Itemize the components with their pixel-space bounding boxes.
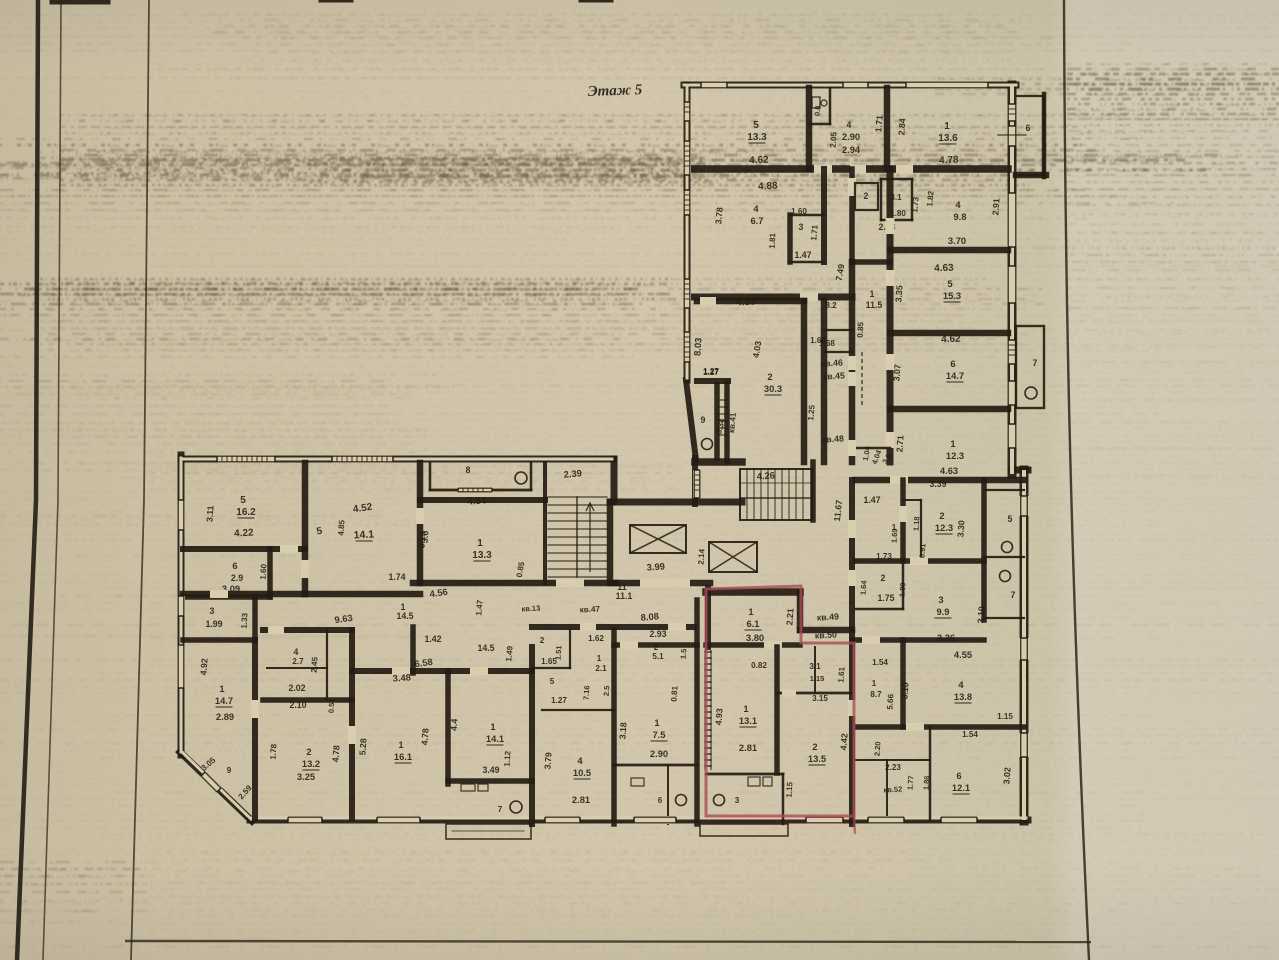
svg-text:3.49: 3.49 bbox=[482, 765, 499, 775]
svg-text:1.27: 1.27 bbox=[703, 368, 719, 377]
svg-text:7.5: 7.5 bbox=[652, 729, 665, 740]
svg-text:кв.49: кв.49 bbox=[817, 611, 840, 622]
svg-text:1.18: 1.18 bbox=[912, 516, 922, 531]
svg-text:1.27: 1.27 bbox=[551, 696, 567, 705]
svg-text:1.61: 1.61 bbox=[836, 666, 846, 683]
svg-text:5: 5 bbox=[550, 677, 555, 686]
svg-text:4: 4 bbox=[294, 647, 299, 657]
svg-text:1: 1 bbox=[870, 289, 875, 299]
svg-text:5: 5 bbox=[947, 278, 952, 289]
svg-text:3.02: 3.02 bbox=[1001, 767, 1012, 785]
svg-text:4.63: 4.63 bbox=[940, 465, 958, 476]
svg-text:1.47: 1.47 bbox=[474, 599, 484, 616]
svg-text:1: 1 bbox=[477, 538, 483, 549]
svg-text:0.8: 0.8 bbox=[813, 105, 823, 116]
svg-text:4.62: 4.62 bbox=[749, 155, 769, 167]
svg-text:1.54: 1.54 bbox=[872, 658, 888, 667]
svg-text:5: 5 bbox=[753, 120, 759, 131]
svg-text:2.45: 2.45 bbox=[309, 656, 319, 673]
svg-text:2.02: 2.02 bbox=[288, 683, 305, 693]
svg-text:2.91: 2.91 bbox=[990, 198, 1001, 216]
svg-text:12.1: 12.1 bbox=[952, 782, 970, 793]
svg-text:1: 1 bbox=[654, 717, 659, 728]
svg-text:2.05: 2.05 bbox=[829, 131, 839, 148]
svg-text:16.1: 16.1 bbox=[394, 751, 412, 762]
svg-text:6: 6 bbox=[232, 560, 237, 571]
svg-text:2: 2 bbox=[812, 741, 817, 752]
svg-text:2.93: 2.93 bbox=[649, 629, 666, 639]
svg-text:кв.41: кв.41 bbox=[727, 412, 738, 433]
svg-text:4.62: 4.62 bbox=[941, 334, 961, 346]
svg-text:1.51: 1.51 bbox=[554, 645, 564, 660]
svg-text:2.94: 2.94 bbox=[842, 144, 861, 155]
svg-text:4: 4 bbox=[958, 679, 964, 690]
svg-text:4.88: 4.88 bbox=[758, 180, 778, 192]
svg-text:4.55: 4.55 bbox=[954, 649, 972, 660]
svg-text:13.6: 13.6 bbox=[938, 133, 958, 144]
svg-text:2.84: 2.84 bbox=[896, 118, 907, 136]
svg-text:13.2: 13.2 bbox=[302, 758, 320, 769]
svg-text:1: 1 bbox=[748, 606, 753, 617]
svg-text:1.73: 1.73 bbox=[910, 196, 920, 213]
svg-text:3.99: 3.99 bbox=[646, 560, 665, 572]
svg-text:4.78: 4.78 bbox=[939, 154, 959, 166]
svg-text:13.1: 13.1 bbox=[739, 715, 757, 726]
svg-text:3.80: 3.80 bbox=[746, 632, 764, 643]
svg-text:0.81: 0.81 bbox=[669, 685, 679, 702]
svg-text:13.3: 13.3 bbox=[472, 550, 492, 561]
svg-text:1.60: 1.60 bbox=[258, 563, 268, 580]
svg-text:3: 3 bbox=[735, 796, 740, 805]
svg-text:3: 3 bbox=[210, 606, 215, 616]
svg-text:1.71: 1.71 bbox=[873, 115, 884, 133]
svg-text:1.86: 1.86 bbox=[922, 775, 932, 790]
svg-text:5.1: 5.1 bbox=[652, 652, 664, 661]
svg-text:1: 1 bbox=[398, 739, 403, 750]
svg-text:5: 5 bbox=[1008, 514, 1013, 524]
svg-text:5: 5 bbox=[240, 495, 246, 506]
svg-text:8.2: 8.2 bbox=[825, 301, 837, 310]
svg-text:1.25: 1.25 bbox=[806, 404, 816, 421]
svg-text:7.16: 7.16 bbox=[582, 685, 592, 700]
svg-text:3.11: 3.11 bbox=[204, 505, 215, 522]
svg-text:6: 6 bbox=[1026, 123, 1031, 133]
svg-text:0.51: 0.51 bbox=[327, 698, 337, 713]
svg-text:2: 2 bbox=[939, 510, 944, 521]
svg-text:2: 2 bbox=[767, 371, 772, 382]
svg-text:13.8: 13.8 bbox=[954, 691, 972, 702]
svg-text:1: 1 bbox=[944, 121, 950, 132]
svg-text:1.82: 1.82 bbox=[925, 190, 935, 207]
svg-text:3.18: 3.18 bbox=[617, 722, 628, 740]
svg-text:1.49: 1.49 bbox=[504, 645, 514, 662]
svg-text:Этаж 5: Этаж 5 bbox=[588, 82, 643, 100]
svg-text:6.7: 6.7 bbox=[750, 215, 763, 226]
svg-text:1.78: 1.78 bbox=[268, 743, 278, 760]
svg-text:3.10: 3.10 bbox=[899, 682, 910, 700]
svg-text:2.39: 2.39 bbox=[563, 467, 582, 480]
svg-text:16.2: 16.2 bbox=[236, 507, 256, 518]
svg-text:2: 2 bbox=[881, 573, 886, 583]
svg-text:4.92: 4.92 bbox=[198, 658, 209, 676]
svg-text:2.90: 2.90 bbox=[650, 748, 668, 759]
svg-text:3.15: 3.15 bbox=[812, 694, 828, 703]
svg-text:4.63: 4.63 bbox=[934, 263, 954, 275]
svg-text:7: 7 bbox=[1033, 358, 1038, 368]
svg-text:2.7: 2.7 bbox=[292, 657, 304, 666]
svg-text:14.5: 14.5 bbox=[396, 611, 413, 621]
svg-text:1.81: 1.81 bbox=[768, 232, 778, 249]
svg-text:7: 7 bbox=[1011, 590, 1016, 600]
svg-text:1: 1 bbox=[872, 679, 877, 688]
svg-text:кв.46: кв.46 bbox=[821, 357, 844, 368]
svg-text:1: 1 bbox=[219, 683, 224, 694]
svg-text:1.47: 1.47 bbox=[863, 495, 880, 505]
svg-text:3.07: 3.07 bbox=[891, 364, 902, 382]
svg-text:11.5: 11.5 bbox=[866, 300, 883, 310]
svg-text:30.3: 30.3 bbox=[764, 383, 782, 394]
svg-text:9.8: 9.8 bbox=[953, 211, 966, 222]
svg-text:4.93: 4.93 bbox=[713, 708, 724, 726]
svg-text:6: 6 bbox=[956, 770, 961, 781]
svg-text:1.75: 1.75 bbox=[877, 593, 894, 603]
svg-text:1.62: 1.62 bbox=[588, 634, 604, 643]
svg-text:7: 7 bbox=[498, 805, 503, 814]
svg-text:2.5: 2.5 bbox=[602, 685, 612, 696]
svg-text:1.64: 1.64 bbox=[859, 579, 869, 595]
svg-text:2.81: 2.81 bbox=[572, 794, 590, 805]
svg-text:4.4: 4.4 bbox=[449, 718, 460, 731]
svg-text:1.47: 1.47 bbox=[794, 250, 811, 260]
svg-text:4.33: 4.33 bbox=[736, 296, 756, 308]
svg-text:2.20: 2.20 bbox=[873, 741, 883, 756]
svg-text:6.1: 6.1 bbox=[746, 618, 759, 629]
svg-text:кв.13: кв.13 bbox=[521, 604, 540, 614]
svg-text:0.91: 0.91 bbox=[918, 543, 928, 558]
svg-text:8.08: 8.08 bbox=[640, 610, 659, 623]
svg-text:1.68: 1.68 bbox=[810, 336, 826, 345]
svg-text:3.25: 3.25 bbox=[297, 771, 315, 782]
svg-text:14.7: 14.7 bbox=[946, 370, 964, 381]
svg-text:1.73: 1.73 bbox=[876, 552, 892, 561]
svg-text:5.66: 5.66 bbox=[885, 693, 895, 710]
svg-text:4: 4 bbox=[753, 203, 759, 214]
svg-text:3.78: 3.78 bbox=[713, 207, 724, 225]
svg-text:2: 2 bbox=[306, 746, 311, 757]
svg-text:4.78: 4.78 bbox=[419, 728, 430, 746]
svg-text:4.42: 4.42 bbox=[838, 733, 849, 751]
svg-text:14.1: 14.1 bbox=[486, 733, 504, 744]
svg-text:14.5: 14.5 bbox=[477, 643, 494, 653]
svg-text:4.85: 4.85 bbox=[336, 519, 346, 536]
svg-text:8.7: 8.7 bbox=[870, 690, 882, 699]
svg-text:2.14: 2.14 bbox=[696, 548, 706, 565]
svg-text:12.3: 12.3 bbox=[946, 450, 964, 461]
svg-text:2.1: 2.1 bbox=[595, 664, 607, 673]
svg-text:3.35: 3.35 bbox=[893, 285, 904, 303]
svg-text:0.82: 0.82 bbox=[751, 661, 767, 670]
svg-text:1.77: 1.77 bbox=[906, 775, 916, 790]
svg-text:1: 1 bbox=[950, 438, 955, 449]
svg-text:3.0: 3.0 bbox=[420, 530, 431, 543]
svg-text:1.33: 1.33 bbox=[239, 612, 249, 629]
svg-text:1.15: 1.15 bbox=[810, 674, 825, 683]
svg-text:4: 4 bbox=[847, 120, 852, 130]
svg-text:5.28: 5.28 bbox=[357, 738, 368, 756]
svg-text:1.42: 1.42 bbox=[424, 634, 441, 644]
svg-text:3.79: 3.79 bbox=[542, 752, 553, 770]
svg-text:кв.52: кв.52 bbox=[883, 785, 902, 795]
svg-text:1.74: 1.74 bbox=[388, 572, 405, 582]
svg-text:2.9: 2.9 bbox=[231, 573, 243, 583]
svg-text:1: 1 bbox=[490, 721, 495, 732]
svg-text:13.3: 13.3 bbox=[747, 132, 767, 143]
svg-text:3: 3 bbox=[799, 222, 804, 232]
svg-text:9: 9 bbox=[227, 766, 232, 775]
svg-text:11.1: 11.1 bbox=[616, 591, 633, 601]
svg-text:3.1: 3.1 bbox=[809, 662, 821, 671]
svg-text:4: 4 bbox=[577, 755, 583, 766]
svg-text:2: 2 bbox=[864, 191, 869, 201]
svg-text:15.3: 15.3 bbox=[943, 290, 961, 301]
svg-text:кв.45: кв.45 bbox=[823, 370, 846, 381]
svg-text:1: 1 bbox=[597, 654, 602, 663]
svg-text:2.90: 2.90 bbox=[842, 131, 860, 142]
svg-text:1.99: 1.99 bbox=[205, 619, 222, 629]
svg-text:2.71: 2.71 bbox=[894, 435, 905, 453]
svg-text:кв.48: кв.48 bbox=[822, 433, 845, 444]
svg-text:кв.47: кв.47 bbox=[580, 604, 601, 614]
svg-text:1.80: 1.80 bbox=[898, 582, 908, 597]
svg-text:8: 8 bbox=[466, 465, 471, 475]
svg-text:2: 2 bbox=[540, 636, 545, 645]
svg-text:1.60: 1.60 bbox=[791, 207, 807, 216]
svg-text:3.10: 3.10 bbox=[975, 606, 986, 624]
svg-text:6: 6 bbox=[950, 358, 955, 369]
svg-text:1.54: 1.54 bbox=[962, 730, 978, 739]
svg-text:2.89: 2.89 bbox=[216, 711, 234, 722]
svg-text:4.78: 4.78 bbox=[330, 745, 341, 763]
svg-text:14.1: 14.1 bbox=[353, 528, 374, 541]
svg-text:3.30: 3.30 bbox=[955, 520, 966, 538]
svg-text:2: 2 bbox=[654, 643, 659, 652]
svg-text:14.7: 14.7 bbox=[215, 695, 233, 706]
svg-text:кв.50: кв.50 bbox=[815, 629, 838, 640]
svg-text:3.70: 3.70 bbox=[948, 235, 966, 246]
svg-text:1: 1 bbox=[743, 703, 748, 714]
svg-text:3: 3 bbox=[938, 594, 943, 605]
svg-text:1.69: 1.69 bbox=[890, 528, 900, 543]
svg-text:1.12: 1.12 bbox=[502, 750, 512, 767]
svg-text:4.26: 4.26 bbox=[756, 469, 775, 481]
svg-text:1.15: 1.15 bbox=[997, 712, 1013, 721]
svg-text:1.5: 1.5 bbox=[679, 648, 689, 659]
svg-text:4.22: 4.22 bbox=[234, 527, 254, 539]
svg-text:2.81: 2.81 bbox=[739, 742, 757, 753]
svg-text:2.10: 2.10 bbox=[289, 700, 306, 710]
svg-text:3.36: 3.36 bbox=[937, 632, 955, 643]
svg-text:0.85: 0.85 bbox=[856, 321, 866, 338]
svg-text:12.3: 12.3 bbox=[935, 522, 953, 533]
svg-text:2.21: 2.21 bbox=[784, 608, 795, 626]
svg-text:13.5: 13.5 bbox=[808, 753, 826, 764]
svg-text:8.03: 8.03 bbox=[691, 337, 703, 356]
svg-text:4: 4 bbox=[955, 199, 961, 210]
svg-text:6: 6 bbox=[658, 796, 663, 805]
svg-text:9: 9 bbox=[701, 415, 706, 425]
svg-text:10.5: 10.5 bbox=[573, 767, 591, 778]
svg-text:1.15: 1.15 bbox=[784, 781, 794, 798]
svg-text:3.48: 3.48 bbox=[392, 671, 411, 683]
svg-text:2.23: 2.23 bbox=[885, 763, 901, 772]
svg-text:1.71: 1.71 bbox=[809, 224, 819, 241]
svg-text:9.9: 9.9 bbox=[936, 606, 949, 617]
